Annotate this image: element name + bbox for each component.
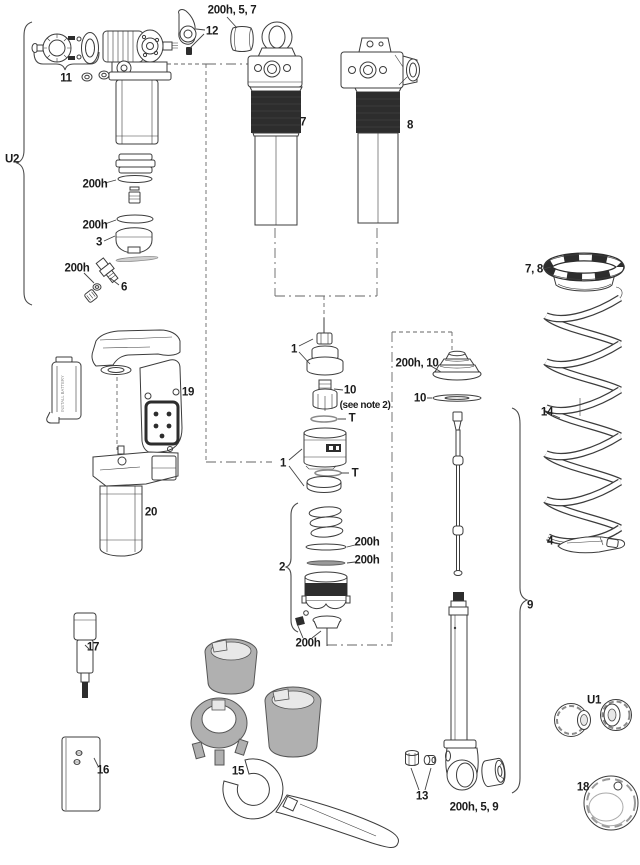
part-damper-assembly	[103, 30, 178, 144]
callout-bushing-top: 200h, 5, 7	[208, 5, 257, 17]
callout-8: 8	[407, 120, 413, 132]
part-15-tools	[191, 639, 398, 848]
brace-9	[512, 408, 527, 793]
callout-11: 11	[60, 73, 72, 85]
brace-u2	[17, 22, 32, 305]
callout-200h-a: 200h	[82, 179, 107, 191]
callout-200h-d: 200h	[354, 537, 379, 549]
part-7-8-preload-collar	[544, 255, 625, 292]
callout-14: 14	[541, 407, 553, 419]
part-16-block	[62, 737, 100, 811]
callout-1-upper: 1	[291, 344, 297, 356]
callout-15: 15	[232, 766, 244, 778]
callout-200h-5-9: 200h, 5, 9	[450, 802, 499, 814]
callout-19: 19	[182, 387, 194, 399]
callout-9: 9	[527, 600, 533, 612]
callout-4: 4	[547, 536, 553, 548]
brace-2	[286, 503, 298, 632]
part-7-shock-body	[248, 22, 302, 225]
part-9-damper-shaft	[444, 592, 478, 790]
callout-u1: U1	[587, 695, 601, 707]
callout-2: 2	[279, 562, 285, 574]
callout-18: 18	[577, 782, 589, 794]
callout-10-washer: 10	[414, 393, 426, 405]
part-needle-shaft	[453, 412, 463, 576]
callout-10-note: 10	[344, 385, 356, 397]
exploded-diagram-canvas: INSTALL BATTERY	[0, 0, 640, 865]
part-2-piston-group	[295, 506, 350, 628]
callout-u2: U2	[5, 154, 19, 166]
part-19-remote-unit	[92, 330, 182, 453]
callout-16: 16	[97, 765, 109, 777]
part-13-nuts	[406, 751, 436, 767]
callout-7: 7	[300, 117, 306, 129]
part-10-bumper	[433, 351, 481, 401]
callout-t-lower: T	[352, 468, 359, 480]
battery-label-text: INSTALL BATTERY	[60, 375, 65, 412]
callout-t-upper: T	[349, 413, 356, 425]
part-12-lever	[179, 10, 196, 55]
part-17-tool	[74, 613, 96, 698]
part-battery: INSTALL BATTERY	[47, 357, 81, 423]
callout-200h-c: 200h	[64, 263, 89, 275]
callout-200h-10: 200h, 10	[396, 358, 439, 370]
callout-200h-e: 200h	[354, 555, 379, 567]
callout-13: 13	[416, 791, 428, 803]
part-bushing-top	[231, 27, 254, 52]
callout-17: 17	[87, 642, 99, 654]
part-bushing-eyelet	[481, 758, 507, 787]
callout-200h-f: 200h	[295, 638, 320, 650]
diagram-line-art: INSTALL BATTERY	[0, 0, 640, 865]
callout-12: 12	[206, 26, 218, 38]
callout-7-8: 7, 8	[525, 264, 543, 276]
callout-6: 6	[121, 282, 127, 294]
callout-20: 20	[145, 507, 157, 519]
part-20-motor-unit	[93, 446, 178, 556]
callout-200h-b: 200h	[82, 220, 107, 232]
callout-1-lower: 1	[280, 458, 286, 470]
part-14-coil-spring	[546, 287, 622, 543]
callout-see-note: (see note 2)	[340, 401, 391, 411]
part-18-knob	[584, 776, 638, 830]
callout-3: 3	[96, 237, 102, 249]
